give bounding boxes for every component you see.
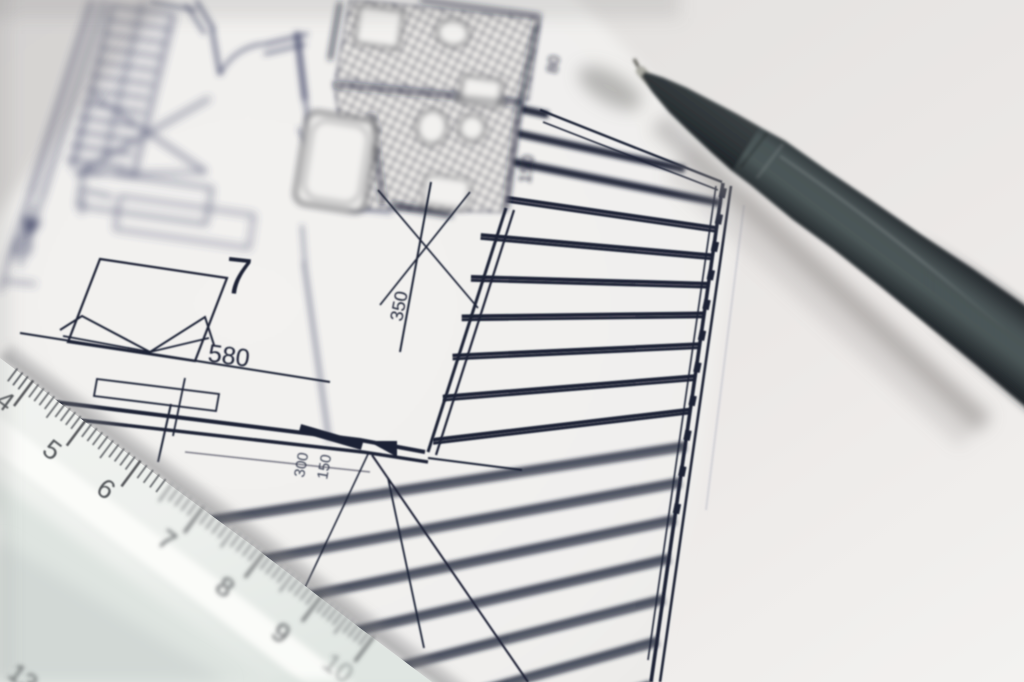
svg-text:580: 580 [206, 339, 251, 373]
svg-text:80: 80 [544, 54, 564, 75]
svg-text:150: 150 [515, 154, 538, 185]
